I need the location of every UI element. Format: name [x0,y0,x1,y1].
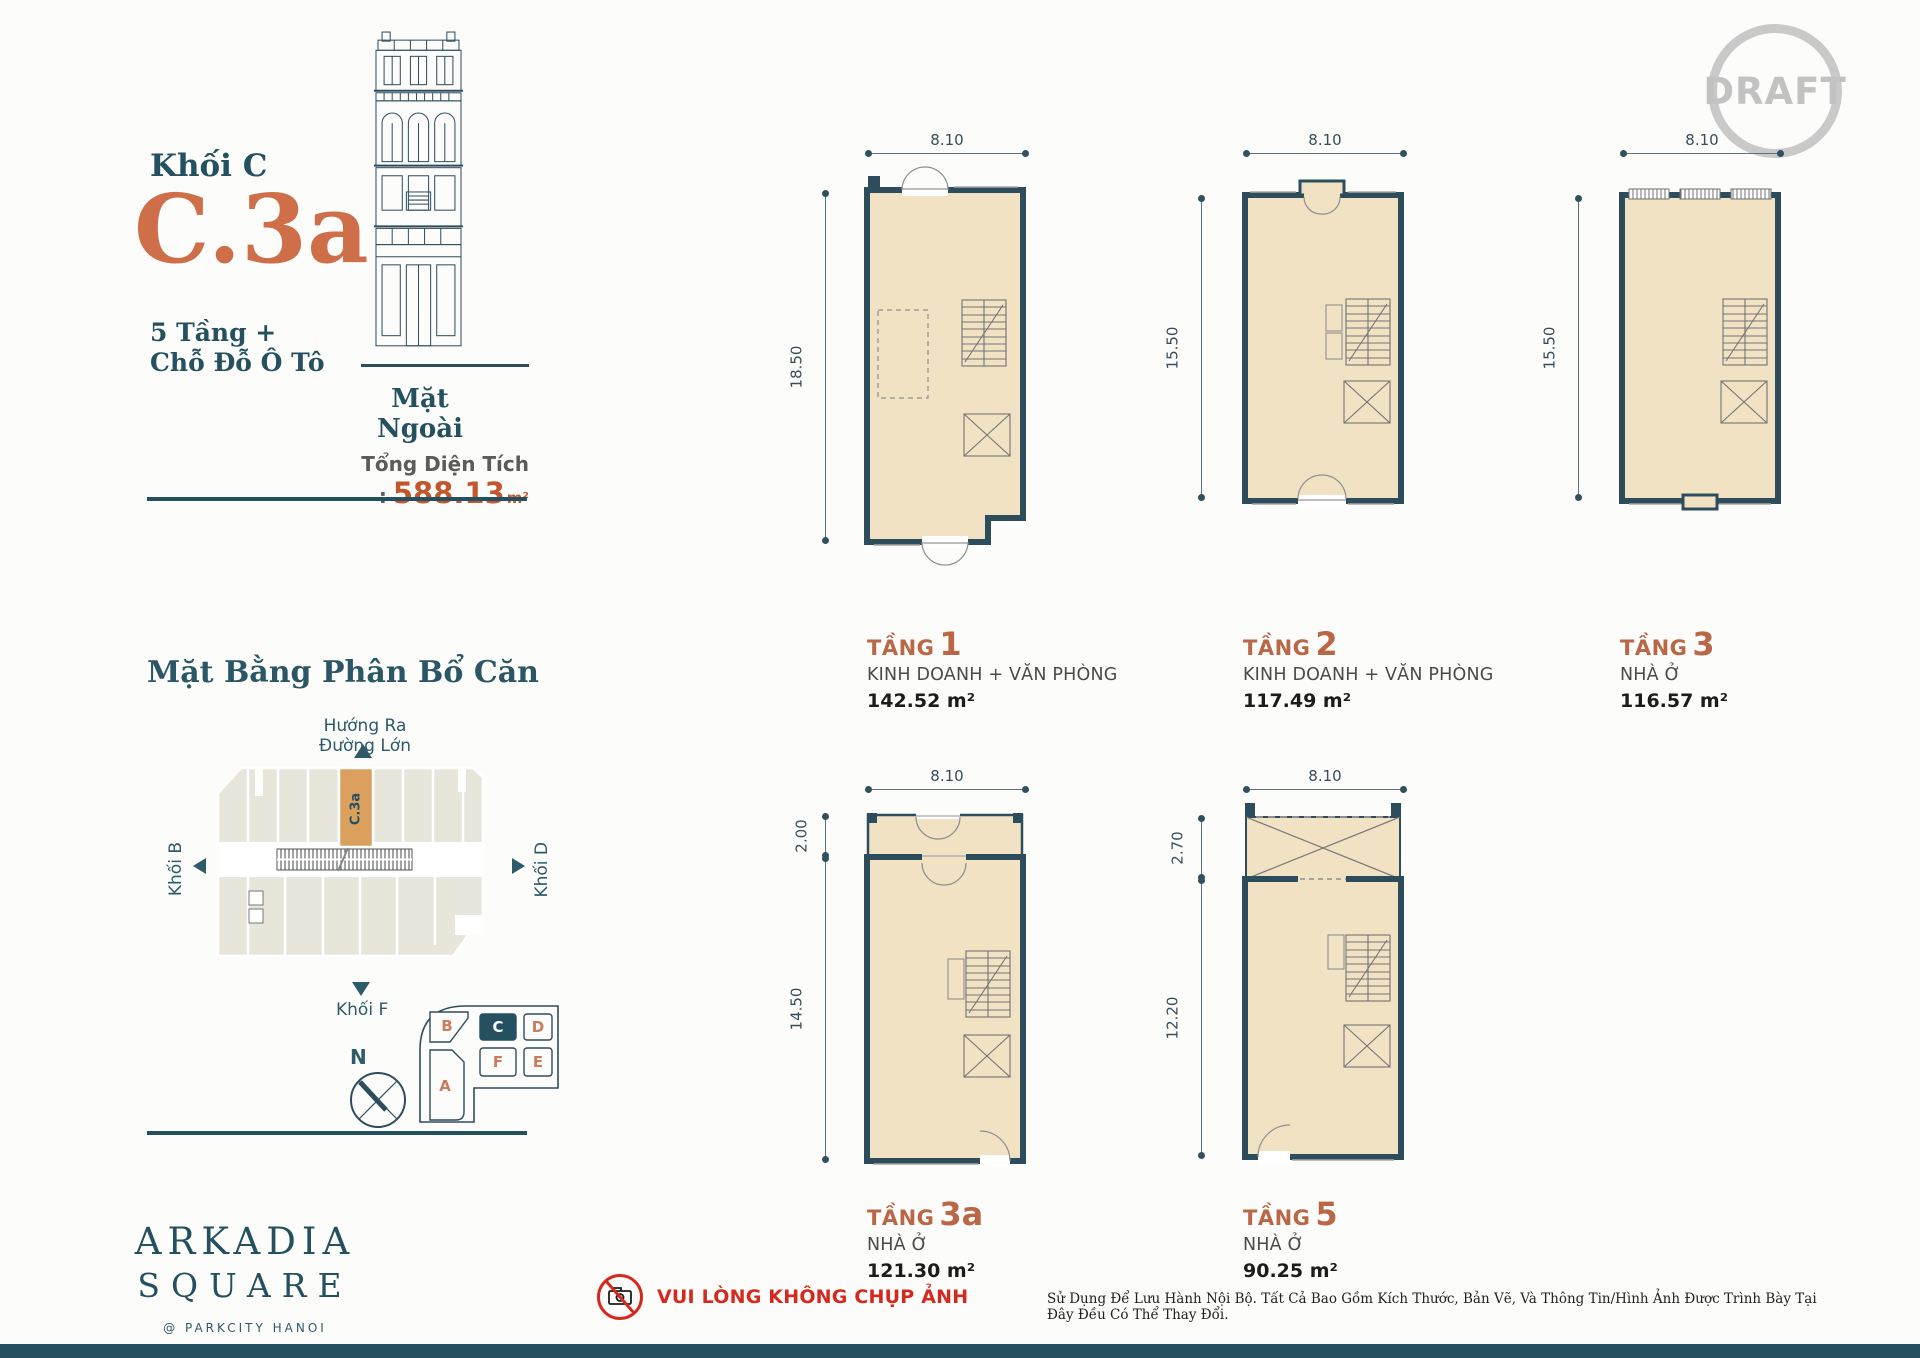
floors-note-line2: Chỗ Đỗ Ô Tô [150,348,325,378]
dim-height-tang3a-lower: 14.50 [780,857,830,1161]
total-area-value: 588.13 [393,476,505,510]
floor-plan-tang2-drawing [1242,163,1404,517]
floor-plan-tang5-drawing [1242,783,1404,1185]
floor-plan-tang1-drawing [864,158,1026,570]
label-tang2-number: 2 [1315,625,1337,663]
dim-height-tang3a-upper-value: 2.00 [792,819,810,852]
dim-height-tang2-value: 15.50 [1164,327,1182,370]
label-tang3-number: 3 [1692,625,1714,663]
footer-disclaimer: Sử Dụng Để Lưu Hành Nội Bộ. Tất Cả Bao G… [1047,1291,1827,1323]
no-photo-warning: VUI LÒNG KHÔNG CHỤP ẢNH [657,1286,968,1308]
key-block-c-label: C [492,1018,503,1036]
dim-height-tang5-upper-value: 2.70 [1168,831,1186,864]
site-block-left-label: Khối B [166,842,186,896]
floors-note-line1: 5 Tầng + [150,318,325,348]
site-plan-drawing: C.3a [215,765,500,960]
dim-height-tang1: 18.50 [780,192,830,542]
dim-height-tang5-lower: 12.20 [1156,879,1206,1157]
key-block-a-label: A [439,1077,451,1095]
block-f-arrow-icon [352,982,370,996]
dim-width-tang1: 8.10 [867,134,1027,158]
key-block-b-label: B [441,1017,452,1035]
facade-elevation-drawing [361,28,476,362]
label-tang3a-number: 3a [939,1195,983,1233]
dim-width-tang3: 8.10 [1622,134,1782,158]
label-tang2-use: KINH DOANH + VĂN PHÒNG [1243,665,1494,685]
brand-name-line1: ARKADIA [128,1220,362,1263]
dim-height-tang3-value: 15.50 [1541,327,1559,370]
dim-height-tang5-upper: 2.70 [1156,817,1206,879]
site-highlighted-unit-label: C.3a [349,793,364,825]
dim-height-tang3a-lower-value: 14.50 [788,988,806,1031]
block-b-arrow-icon [193,858,206,874]
label-tang1-use: KINH DOANH + VĂN PHÒNG [867,665,1118,685]
brand-logo: ARKADIA SQUARE @ PARKCITY HANOI [128,1220,362,1335]
facade-ground-line [361,364,529,367]
floors-note: 5 Tầng + Chỗ Đỗ Ô Tô [150,318,325,377]
label-tang5-use: NHÀ Ở [1243,1235,1338,1255]
label-tang3a-word: TẦNG [867,1206,934,1230]
label-tang3-word: TẦNG [1620,636,1687,660]
bottom-accent-bar [0,1344,1920,1358]
dim-height-tang5-lower-value: 12.20 [1164,997,1182,1040]
label-tang2-area: 117.49 m² [1243,690,1494,712]
siteplan-heading: Mặt Bằng Phân Bổ Căn [147,655,539,690]
label-tang3: TẦNG3 NHÀ Ở 116.57 m² [1620,628,1728,712]
floor-plan-tang3-drawing [1619,163,1781,517]
elevation-caption: Mặt Ngoài [345,384,495,444]
key-block-f-label: F [493,1053,503,1071]
floorplan-sheet: Khối C C.3a 5 Tầng + Chỗ Đỗ Ô Tô [0,0,1920,1358]
no-photo-icon [595,1272,645,1322]
label-tang5-number: 5 [1315,1195,1337,1233]
dim-height-tang3a-upper: 2.00 [780,815,830,857]
floor-plan-tang3a-drawing [864,783,1026,1185]
total-area: Tổng Diện Tích :588.13m² [247,452,529,510]
dim-height-tang1-value: 18.50 [788,346,806,389]
label-tang2-word: TẦNG [1243,636,1310,660]
site-block-bottom-label: Khối F [336,1000,388,1020]
label-tang1-number: 1 [939,625,961,663]
label-tang1-area: 142.52 m² [867,690,1118,712]
label-tang3a-area: 121.30 m² [867,1260,983,1282]
brand-name-line2: SQUARE [128,1266,362,1305]
divider-rule-bottom [147,1131,527,1135]
dim-width-tang3-value: 8.10 [1622,131,1782,149]
label-tang5: TẦNG5 NHÀ Ở 90.25 m² [1243,1198,1338,1282]
label-tang3a: TẦNG3a NHÀ Ở 121.30 m² [867,1198,983,1282]
dim-width-tang1-value: 8.10 [867,131,1027,149]
label-tang3-use: NHÀ Ở [1620,665,1728,685]
dim-height-tang3: 15.50 [1533,197,1583,499]
label-tang2: TẦNG2 KINH DOANH + VĂN PHÒNG 117.49 m² [1243,628,1494,712]
key-block-e-label: E [533,1053,543,1071]
key-block-d-label: D [532,1018,544,1036]
label-tang5-area: 90.25 m² [1243,1260,1338,1282]
divider-rule-top [147,497,527,501]
dim-height-tang2: 15.50 [1156,197,1206,499]
label-tang3-area: 116.57 m² [1620,690,1728,712]
label-tang3a-use: NHÀ Ở [867,1235,983,1255]
label-tang1: TẦNG1 KINH DOANH + VĂN PHÒNG 142.52 m² [867,628,1118,712]
north-compass-icon: N [342,1040,412,1132]
site-block-right-label: Khối D [532,842,552,898]
compass-north-label: N [350,1045,367,1069]
brand-tagline: @ PARKCITY HANOI [128,1321,362,1335]
label-tang5-word: TẦNG [1243,1206,1310,1230]
direction-arrow-up-icon [354,744,372,758]
block-d-arrow-icon [512,858,525,874]
dim-width-tang2: 8.10 [1245,134,1405,158]
unit-code: C.3a [134,182,369,277]
dim-width-tang2-value: 8.10 [1245,131,1405,149]
key-plan-drawing: B C D F E A [416,998,561,1130]
label-tang1-word: TẦNG [867,636,934,660]
